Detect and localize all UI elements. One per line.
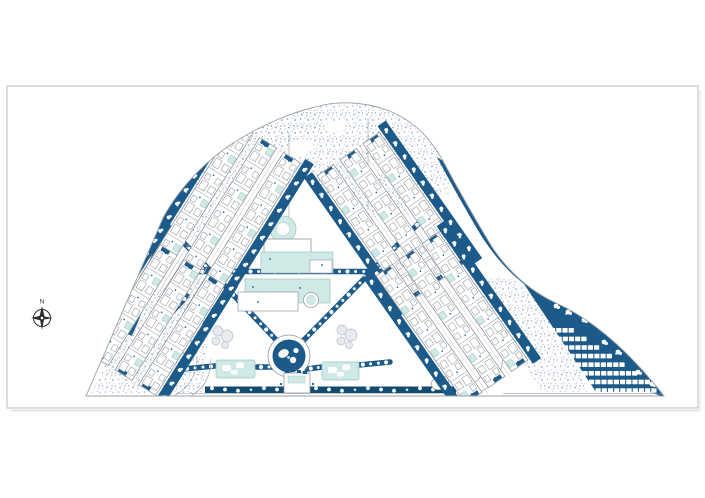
parking-stall — [594, 345, 599, 350]
hedge-shrub — [236, 389, 240, 393]
planter-shrub — [324, 316, 327, 319]
hedge-shrub — [354, 389, 357, 392]
parking-stall — [595, 380, 600, 385]
court-east — [322, 362, 359, 380]
swimmer-mark — [252, 286, 254, 288]
tree-canopy — [451, 192, 454, 195]
parking-stall — [602, 388, 607, 393]
site-plan-canvas: N — [0, 0, 705, 498]
tree-canopy — [481, 254, 484, 257]
fountain-island — [290, 357, 296, 363]
parking-stall — [614, 380, 619, 385]
parking-stall — [563, 337, 568, 342]
hedge-shrub — [418, 386, 422, 390]
gate-planter — [291, 369, 295, 372]
parking-stall — [620, 371, 625, 376]
gate-planter — [285, 370, 289, 373]
parking-stall — [627, 388, 632, 393]
planter-shrub — [312, 327, 316, 331]
hedge-shrub — [223, 388, 227, 392]
planter-shrub — [270, 334, 273, 337]
planter-shrub — [354, 270, 357, 273]
playground-boulder — [212, 337, 220, 345]
fountain-basin — [273, 340, 306, 373]
shrub — [447, 193, 449, 195]
parking-stall — [582, 354, 587, 359]
planter-shrub — [369, 362, 372, 365]
parking-stall — [556, 328, 561, 333]
planter-shrub — [377, 362, 380, 365]
ring-pool-island — [277, 223, 290, 236]
hedge-shrub — [392, 389, 396, 393]
court-feature — [236, 363, 244, 369]
parking-stall — [588, 345, 593, 350]
court-feature — [328, 367, 337, 373]
parking-stall — [651, 388, 656, 393]
gate-planter — [303, 371, 307, 374]
swimmer-mark — [299, 287, 301, 289]
parking-stall — [581, 337, 586, 342]
parking-stall — [613, 362, 618, 367]
tree-canopy — [619, 352, 622, 355]
parking-stall — [633, 388, 638, 393]
parking-stall — [614, 371, 619, 376]
parking-stall — [569, 345, 574, 350]
planter-shrub — [202, 366, 205, 369]
parking-stall — [607, 362, 612, 367]
planter-shrub — [264, 327, 268, 331]
parking-stall — [632, 380, 637, 385]
parking-stall — [596, 388, 601, 393]
parking-stall — [570, 354, 575, 359]
planter-shrub — [347, 293, 351, 297]
playground-boulder — [345, 329, 357, 341]
planter-shrub — [259, 322, 262, 325]
parking-stall — [607, 371, 612, 376]
swimmer-mark — [257, 301, 259, 303]
parking-stall — [645, 388, 650, 393]
parking-stall — [557, 337, 562, 342]
parking-stall — [582, 362, 587, 367]
court-feature — [337, 372, 344, 377]
parking-stall — [576, 362, 581, 367]
fountain-island — [293, 348, 298, 353]
gate-bollard — [280, 383, 282, 385]
parking-stall — [626, 371, 631, 376]
tree-canopy — [461, 208, 464, 211]
spa-circle-water — [307, 296, 316, 305]
parking-stall — [608, 388, 613, 393]
parking-stall — [569, 328, 574, 333]
tree-canopy — [501, 268, 504, 271]
parking-stall — [639, 380, 644, 385]
parking-stall — [601, 354, 606, 359]
planter-shrub — [336, 305, 339, 308]
compass-hub — [40, 316, 43, 319]
tree-canopy — [605, 342, 608, 345]
compass-north-label: N — [40, 299, 45, 306]
parking-stall — [583, 371, 588, 376]
hedge-shrub — [327, 388, 331, 392]
playground-boulder — [337, 337, 345, 345]
parking-stall — [550, 328, 555, 333]
hedge-shrub — [250, 389, 253, 392]
hedge-shrub — [366, 386, 370, 390]
planter-shrub — [341, 299, 344, 302]
planter-shrub — [338, 270, 341, 273]
tree-canopy — [569, 312, 572, 315]
hedge-shrub — [210, 386, 214, 390]
fountain-jet — [287, 356, 290, 359]
parking-stall — [575, 337, 580, 342]
planter-shrub — [268, 366, 271, 369]
shrub — [565, 313, 567, 315]
shrub — [615, 353, 617, 355]
planter-shrub — [259, 365, 263, 369]
parking-stall — [569, 337, 574, 342]
parking-stall — [582, 345, 587, 350]
gate-bollard — [312, 383, 314, 385]
planter-shrub — [307, 334, 310, 337]
parking-stall — [595, 362, 600, 367]
pool-terrace — [238, 292, 298, 311]
planter-shrub — [362, 270, 365, 273]
planter-shrub — [309, 366, 313, 370]
planter-shrub — [359, 282, 362, 285]
planter-shrub — [317, 366, 320, 369]
parking-stall — [614, 388, 619, 393]
parking-stall — [589, 380, 594, 385]
parking-stall — [576, 354, 581, 359]
planter-shrub — [248, 269, 252, 273]
playground-boulder — [346, 342, 353, 349]
parking-stall — [620, 380, 625, 385]
hedge-shrub — [275, 388, 279, 392]
court-feature — [231, 370, 238, 375]
playground-boulder — [221, 330, 233, 342]
hedge-shrub — [340, 389, 344, 393]
parking-stall — [562, 328, 567, 333]
planter-shrub — [329, 310, 333, 314]
parking-stall — [601, 362, 606, 367]
drawing-sheet: N — [0, 0, 705, 498]
playground-boulder — [222, 342, 229, 349]
parking-stall — [601, 371, 606, 376]
parking-stall — [626, 380, 631, 385]
hedge-shrub — [379, 388, 383, 392]
hedge-shrub — [314, 386, 318, 390]
parking-stall — [639, 388, 644, 393]
planter-shrub — [345, 269, 349, 273]
dune-clearing — [326, 121, 346, 133]
court-west — [216, 360, 255, 378]
hedge-shrub — [262, 386, 266, 390]
tree-canopy — [639, 372, 642, 375]
swimmer-mark — [269, 258, 271, 260]
planter-shrub — [384, 360, 388, 364]
parking-stall — [588, 362, 593, 367]
tree-canopy — [469, 236, 472, 239]
swimmer-mark — [321, 264, 323, 266]
planter-shrub — [361, 363, 365, 367]
court-feature — [342, 365, 350, 371]
parking-stall — [595, 371, 600, 376]
parking-stall — [594, 354, 599, 359]
parking-stall — [563, 345, 568, 350]
pool-deck — [310, 260, 332, 273]
parking-stall — [620, 388, 625, 393]
parking-stall — [607, 354, 612, 359]
planter-shrub — [353, 287, 356, 290]
planter-shrub — [257, 270, 260, 273]
parking-stall — [601, 380, 606, 385]
parking-stall — [645, 380, 650, 385]
tree-canopy — [557, 306, 560, 309]
gate-planter — [297, 370, 301, 373]
planter-shrub — [254, 316, 257, 319]
entrance-canopy — [288, 376, 305, 383]
parking-stall — [589, 371, 594, 376]
parking-stall — [619, 362, 624, 367]
parking-stall — [608, 380, 613, 385]
parking-stall — [575, 345, 580, 350]
court-feature — [222, 365, 231, 371]
parking-stall — [588, 354, 593, 359]
planter-shrub — [319, 322, 322, 325]
hedge-shrub — [406, 389, 409, 392]
